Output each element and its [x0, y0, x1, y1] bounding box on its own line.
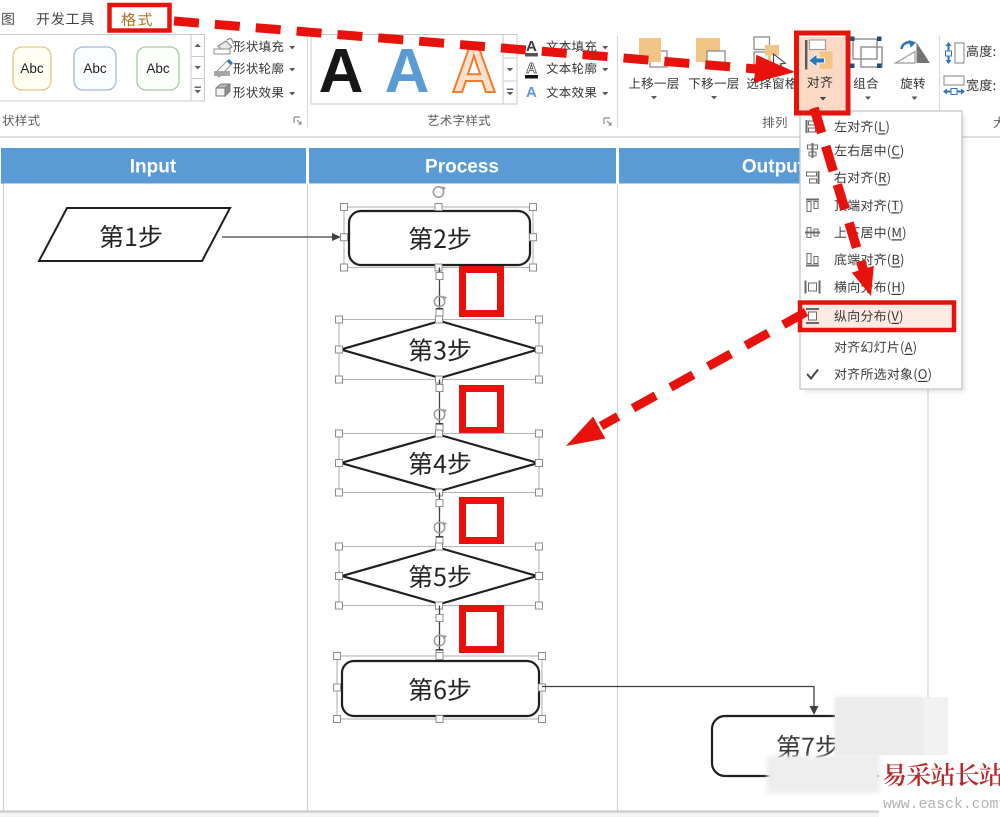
svg-text:A: A: [319, 37, 364, 106]
svg-text:A: A: [526, 38, 537, 55]
svg-text:A: A: [526, 84, 537, 101]
svg-text:Output: Output: [742, 157, 805, 178]
svg-text:Process: Process: [425, 157, 499, 178]
svg-text:Abc: Abc: [146, 61, 170, 76]
svg-text:www.easck.com: www.easck.com: [883, 797, 999, 813]
svg-text:A: A: [526, 60, 537, 77]
svg-text:Abc: Abc: [20, 61, 44, 76]
svg-text:A: A: [385, 37, 430, 106]
svg-text:Abc: Abc: [83, 61, 107, 76]
svg-text:Input: Input: [130, 157, 177, 178]
